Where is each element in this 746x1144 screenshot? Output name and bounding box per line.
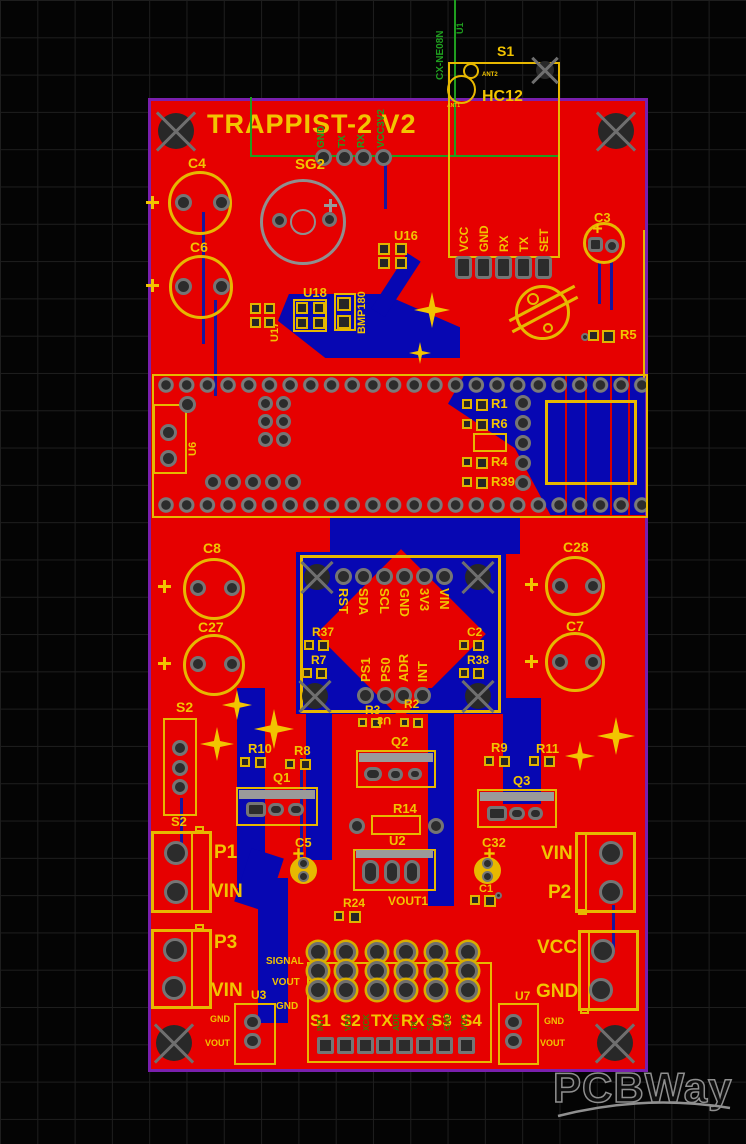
resistor-pad[interactable] <box>316 668 327 679</box>
p3-vin-label: VIN <box>211 981 243 1000</box>
s2-label-top[interactable]: S2 <box>176 700 193 714</box>
resistor-pad[interactable] <box>462 419 472 429</box>
pad[interactable] <box>458 1037 475 1054</box>
pad[interactable] <box>322 212 337 227</box>
planet-crater <box>527 293 539 305</box>
r6-label[interactable]: R6 <box>491 417 508 430</box>
terminal-notch <box>195 826 204 832</box>
pad[interactable] <box>268 803 284 816</box>
pad[interactable] <box>336 961 356 981</box>
vcc-label: VCC <box>537 938 577 957</box>
p1-vin-label: VIN <box>211 882 243 901</box>
resistor-pad[interactable] <box>476 457 488 469</box>
r2-label[interactable]: R2 <box>404 698 419 710</box>
pad[interactable] <box>384 860 400 884</box>
u2-label[interactable]: U2 <box>389 834 406 847</box>
net-line <box>250 97 252 157</box>
u3-vout-label: VOUT <box>205 1039 230 1048</box>
u3-label[interactable]: U3 <box>251 989 266 1001</box>
c8-label[interactable]: C8 <box>203 541 221 555</box>
pad[interactable] <box>487 806 507 821</box>
c5-label[interactable]: C5 <box>295 836 312 849</box>
pad[interactable] <box>357 687 374 704</box>
header-pad[interactable] <box>475 256 492 279</box>
pad[interactable] <box>404 860 420 884</box>
r10-label[interactable]: R10 <box>248 742 272 755</box>
pad[interactable] <box>367 961 387 981</box>
r14-outline[interactable] <box>371 815 421 835</box>
pad[interactable] <box>376 1037 393 1054</box>
copper-pour <box>330 518 520 554</box>
pin-label: PS0 <box>379 624 392 682</box>
pin-label: 3V3 <box>418 588 431 640</box>
via[interactable] <box>495 892 502 899</box>
terminal-divider <box>588 930 590 1011</box>
p1-label[interactable]: P1 <box>214 843 237 862</box>
header-pad[interactable] <box>495 256 512 279</box>
capacitor-pad[interactable] <box>470 895 480 905</box>
pin-label: INT <box>416 636 429 682</box>
c7-label[interactable]: C7 <box>566 619 584 633</box>
smd-pad[interactable] <box>264 303 275 314</box>
module-outline[interactable] <box>545 400 637 485</box>
pad[interactable] <box>258 396 273 411</box>
polarity-plus-icon <box>525 578 538 591</box>
resistor-pad[interactable] <box>459 668 469 678</box>
pad[interactable] <box>552 578 568 594</box>
pad[interactable] <box>308 980 328 1000</box>
smd-pad[interactable] <box>395 257 407 269</box>
q1-tab <box>239 790 315 799</box>
socket-corner-pad[interactable] <box>304 564 330 590</box>
smd-pad[interactable] <box>313 302 325 314</box>
pad[interactable] <box>308 942 328 962</box>
r24-label[interactable]: R24 <box>343 897 365 909</box>
header-pad[interactable] <box>535 256 552 279</box>
r8-label[interactable]: R8 <box>294 744 311 757</box>
q3-label[interactable]: Q3 <box>513 774 530 787</box>
antenna-pad[interactable] <box>447 75 476 104</box>
resistor-pad[interactable] <box>529 756 539 766</box>
resistor-pad[interactable] <box>462 399 472 409</box>
resistor-pad[interactable] <box>255 757 266 768</box>
header-net-label: VCC <box>461 1004 469 1031</box>
vout1-label: VOUT1 <box>388 895 428 907</box>
radio-side-pad[interactable] <box>355 149 372 166</box>
silk-line <box>643 230 645 390</box>
pad[interactable] <box>160 424 177 441</box>
smd-pad[interactable] <box>250 317 261 328</box>
q3-tab <box>480 792 554 801</box>
pad[interactable] <box>589 978 613 1002</box>
gnd-label: GND <box>536 982 578 1001</box>
r1-label[interactable]: R1 <box>491 397 508 410</box>
pad[interactable] <box>509 807 525 820</box>
trace <box>610 262 613 310</box>
pad[interactable] <box>367 942 387 962</box>
u3-gnd-label: GND <box>210 1015 230 1024</box>
resistor-pad[interactable] <box>544 756 555 767</box>
polarity-plus-icon <box>158 657 171 670</box>
pad[interactable] <box>213 278 230 295</box>
pin-label: VCC3V2 <box>377 94 387 148</box>
pad[interactable] <box>175 278 192 295</box>
pad[interactable] <box>244 1014 261 1030</box>
mounting-hole[interactable] <box>597 1025 633 1061</box>
pad[interactable] <box>515 435 531 451</box>
u7-label[interactable]: U7 <box>515 990 530 1002</box>
pad[interactable] <box>164 841 188 865</box>
pin-label: VIN <box>438 588 451 632</box>
radio-side-pad[interactable] <box>336 149 353 166</box>
u7-gnd-label: GND <box>544 1017 564 1026</box>
radio-side-pad[interactable] <box>375 149 392 166</box>
pin-label: RX <box>357 114 367 148</box>
pad[interactable] <box>552 654 568 670</box>
pad[interactable] <box>224 580 240 596</box>
smd-pad[interactable] <box>264 317 275 328</box>
pad[interactable] <box>298 858 309 869</box>
smd-pad[interactable] <box>395 243 407 255</box>
pad[interactable] <box>244 1033 261 1049</box>
pad[interactable] <box>388 768 403 781</box>
polarity-plus-icon <box>324 199 337 212</box>
c1-label[interactable]: C1 <box>479 884 493 895</box>
resistor-pad[interactable] <box>588 330 599 341</box>
pad[interactable] <box>163 938 187 962</box>
header-net-label: ADR <box>393 1004 401 1031</box>
pad[interactable] <box>245 474 261 490</box>
mounting-hole[interactable] <box>598 113 634 149</box>
pad[interactable] <box>396 568 413 585</box>
pin-label: TX <box>338 114 348 148</box>
polarity-plus-icon <box>146 196 159 209</box>
pad[interactable] <box>172 740 188 756</box>
pad[interactable] <box>605 239 619 253</box>
socket-corner-pad[interactable] <box>465 683 491 709</box>
r37-label[interactable]: R37 <box>312 626 334 638</box>
overlay-ref-u1[interactable]: U1 <box>456 8 465 34</box>
pad[interactable] <box>585 578 601 594</box>
c32-label[interactable]: C32 <box>482 836 506 849</box>
header-net-label: TX <box>411 1004 419 1031</box>
pad[interactable] <box>298 871 309 882</box>
watermark-swoosh <box>556 1100 734 1124</box>
resistor-pad[interactable] <box>499 756 510 767</box>
resistor-pad[interactable] <box>476 399 488 411</box>
terminal-divider <box>585 832 587 913</box>
resistor-pad[interactable] <box>413 718 423 728</box>
pad[interactable] <box>160 450 177 467</box>
q2-tab <box>359 753 433 762</box>
smd-pad[interactable] <box>250 303 261 314</box>
pad[interactable] <box>190 580 206 596</box>
pad[interactable] <box>428 818 444 834</box>
resistor-pad[interactable] <box>462 457 472 467</box>
polarity-plus-icon <box>158 580 171 593</box>
trace <box>384 165 387 209</box>
resistor-pad[interactable] <box>334 911 344 921</box>
pad[interactable] <box>591 939 615 963</box>
pin-label: RX <box>498 212 510 252</box>
resistor-pad[interactable] <box>476 419 488 431</box>
capacitor-pad[interactable] <box>473 640 484 651</box>
mounting-hole[interactable] <box>156 1025 192 1061</box>
q2-label[interactable]: Q2 <box>391 735 408 748</box>
pad[interactable] <box>367 980 387 1000</box>
smd-pad[interactable] <box>337 297 351 311</box>
pad[interactable] <box>190 656 206 672</box>
pad[interactable] <box>515 455 531 471</box>
capacitor-pad[interactable] <box>459 640 469 650</box>
c4-label[interactable]: C4 <box>188 156 206 170</box>
pin-label: PS1 <box>359 624 372 682</box>
pin-label: RST <box>337 588 350 640</box>
pad[interactable] <box>224 656 240 672</box>
pin-label: TX <box>518 212 530 252</box>
header-label: TX <box>371 1012 393 1029</box>
r7-label[interactable]: R7 <box>311 654 326 666</box>
pad[interactable] <box>505 1033 522 1049</box>
pad[interactable] <box>396 980 416 1000</box>
pad[interactable] <box>416 1037 433 1054</box>
pin-row[interactable] <box>156 497 646 513</box>
r5-label[interactable]: R5 <box>620 328 637 341</box>
buzzer-hole <box>290 209 316 235</box>
pad[interactable] <box>258 432 273 447</box>
pad[interactable] <box>288 803 304 816</box>
smd-pad[interactable] <box>296 302 308 314</box>
pad[interactable] <box>585 654 601 670</box>
pad[interactable] <box>396 1037 413 1054</box>
resistor-pad[interactable] <box>476 477 488 489</box>
pad[interactable] <box>515 475 531 491</box>
pad[interactable] <box>205 474 221 490</box>
pad[interactable] <box>179 396 196 413</box>
pad[interactable] <box>364 767 382 781</box>
pad[interactable] <box>265 474 281 490</box>
gnd-label: GND <box>276 1002 298 1012</box>
pad[interactable] <box>426 961 446 981</box>
pad[interactable] <box>458 942 478 962</box>
polarity-plus-icon <box>593 224 602 233</box>
trace <box>598 262 601 304</box>
resistor-pad[interactable] <box>602 330 615 343</box>
pad[interactable] <box>362 860 379 884</box>
pin-label: VCC <box>458 194 470 252</box>
header-net-label: INT <box>317 1004 325 1031</box>
radio-ref-label[interactable]: S1 <box>497 44 514 58</box>
pad[interactable] <box>258 414 273 429</box>
header-pad[interactable] <box>455 256 472 279</box>
terminal-divider <box>191 831 193 913</box>
resistor-pad[interactable] <box>304 640 314 650</box>
pad[interactable] <box>276 432 291 447</box>
terminal-notch <box>580 1008 589 1014</box>
c6-label[interactable]: C6 <box>190 240 208 254</box>
u16-label[interactable]: U16 <box>394 229 418 242</box>
pad[interactable] <box>396 961 416 981</box>
c28-label[interactable]: C28 <box>563 540 589 554</box>
resistor-pad[interactable] <box>318 640 329 651</box>
pad[interactable] <box>317 1037 334 1054</box>
p3-label[interactable]: P3 <box>214 933 237 952</box>
pad[interactable] <box>396 942 416 962</box>
pad[interactable] <box>335 568 352 585</box>
smd-pad[interactable] <box>337 315 351 329</box>
pad[interactable] <box>426 942 446 962</box>
u8-label[interactable]: U8 <box>377 714 391 725</box>
r39-label[interactable]: R39 <box>491 475 515 488</box>
resistor-pad[interactable] <box>349 911 361 923</box>
q1-label[interactable]: Q1 <box>273 771 290 784</box>
header-pad[interactable] <box>515 256 532 279</box>
pad[interactable] <box>355 568 372 585</box>
pad[interactable] <box>436 568 453 585</box>
overlay-net-label: CX-NE08N <box>436 0 446 80</box>
pad[interactable] <box>172 779 188 795</box>
ant1-label: ANT1 <box>447 104 460 109</box>
resistor-pad[interactable] <box>285 759 295 769</box>
signal-label: SIGNAL <box>266 957 304 967</box>
pad[interactable] <box>175 194 192 211</box>
pad[interactable] <box>308 961 328 981</box>
resistor-pad[interactable] <box>484 756 494 766</box>
pad[interactable] <box>505 1014 522 1030</box>
pin-row[interactable] <box>156 377 646 393</box>
pad[interactable] <box>272 213 287 228</box>
p2-vin-label: VIN <box>541 844 573 863</box>
pad[interactable] <box>246 802 266 817</box>
terminal-divider <box>191 929 193 1009</box>
u18-label[interactable]: U18 <box>303 286 327 299</box>
mounting-hole[interactable] <box>158 113 194 149</box>
pad[interactable] <box>599 841 623 865</box>
pad[interactable] <box>416 568 433 585</box>
pad[interactable] <box>336 980 356 1000</box>
pad[interactable] <box>436 1037 453 1054</box>
pad[interactable] <box>528 807 543 820</box>
smd-pad[interactable] <box>378 243 390 255</box>
radio-corner-pad[interactable] <box>536 61 554 79</box>
socket-corner-pad[interactable] <box>465 564 491 590</box>
resistor-pad[interactable] <box>358 718 367 727</box>
capacitor-pad[interactable] <box>484 895 496 907</box>
resistor-pad[interactable] <box>400 718 409 727</box>
pad[interactable] <box>162 976 186 1000</box>
sg2-label[interactable]: SG2 <box>295 157 325 172</box>
polarity-plus-icon <box>525 655 538 668</box>
pad[interactable] <box>482 858 493 869</box>
bmp180-label[interactable]: BMP180 <box>357 284 368 334</box>
pad[interactable] <box>349 818 365 834</box>
r38-label[interactable]: R38 <box>467 654 489 666</box>
resistor-pad[interactable] <box>462 477 472 487</box>
pad[interactable] <box>515 395 531 411</box>
pad[interactable] <box>164 880 188 904</box>
resistor-pad[interactable] <box>240 757 250 767</box>
radio-part-label[interactable]: HC12 <box>482 89 523 105</box>
resistor-pad[interactable] <box>473 668 484 679</box>
pad[interactable] <box>172 760 188 776</box>
pad[interactable] <box>225 474 241 490</box>
pin-label: GND <box>478 194 490 252</box>
pad[interactable] <box>588 237 603 252</box>
pad[interactable] <box>458 961 478 981</box>
pad[interactable] <box>599 880 623 904</box>
socket-corner-pad[interactable] <box>302 683 328 709</box>
pad[interactable] <box>276 414 291 429</box>
c2-label[interactable]: C2 <box>467 626 482 638</box>
r14-label[interactable]: R14 <box>393 802 417 815</box>
pad[interactable] <box>336 942 356 962</box>
p2-label[interactable]: P2 <box>548 883 571 902</box>
polarity-plus-icon <box>146 279 159 292</box>
u6-label[interactable]: U6 <box>188 428 199 456</box>
r9-label[interactable]: R9 <box>491 741 508 754</box>
pad[interactable] <box>458 980 478 1000</box>
ant2-label: ANT2 <box>482 72 498 78</box>
pad[interactable] <box>408 768 422 780</box>
component-outline[interactable] <box>473 433 507 452</box>
vout-label: VOUT <box>272 978 300 988</box>
header-net-label: XCK <box>363 1004 371 1031</box>
u7-vout-label: VOUT <box>540 1039 565 1048</box>
pin-label: SET <box>538 198 550 252</box>
terminal-notch <box>578 909 587 915</box>
pad[interactable] <box>482 871 493 882</box>
smd-pad[interactable] <box>313 317 325 329</box>
s2-label-bottom[interactable]: S2 <box>171 815 187 828</box>
pad[interactable] <box>515 415 531 431</box>
r11-label[interactable]: R11 <box>536 742 559 755</box>
pad[interactable] <box>337 1037 354 1054</box>
header-net-label: SCL <box>427 1004 435 1031</box>
pad[interactable] <box>285 474 301 490</box>
smd-pad[interactable] <box>378 257 390 269</box>
pad[interactable] <box>213 194 230 211</box>
u2-tab <box>356 850 433 858</box>
pad[interactable] <box>426 980 446 1000</box>
pad[interactable] <box>376 568 393 585</box>
smd-pad[interactable] <box>296 317 308 329</box>
resistor-pad[interactable] <box>300 759 311 770</box>
terminal-notch <box>195 924 204 930</box>
pad[interactable] <box>357 1037 374 1054</box>
pin-label: ADR <box>397 624 410 682</box>
pad[interactable] <box>377 687 394 704</box>
header-net-label: GND <box>444 1004 452 1031</box>
pcb-editor-canvas[interactable]: TRAPPIST-2 V2 CX-NE08N U1 S1 ANT2 ANT1 H… <box>0 0 746 1144</box>
planet-crater <box>543 323 553 333</box>
header-net-label: VDD <box>345 1004 353 1031</box>
c27-label[interactable]: C27 <box>198 620 224 634</box>
pin-label: GND <box>317 106 327 148</box>
resistor-pad[interactable] <box>302 668 312 678</box>
pad[interactable] <box>276 396 291 411</box>
r4-label[interactable]: R4 <box>491 455 508 468</box>
